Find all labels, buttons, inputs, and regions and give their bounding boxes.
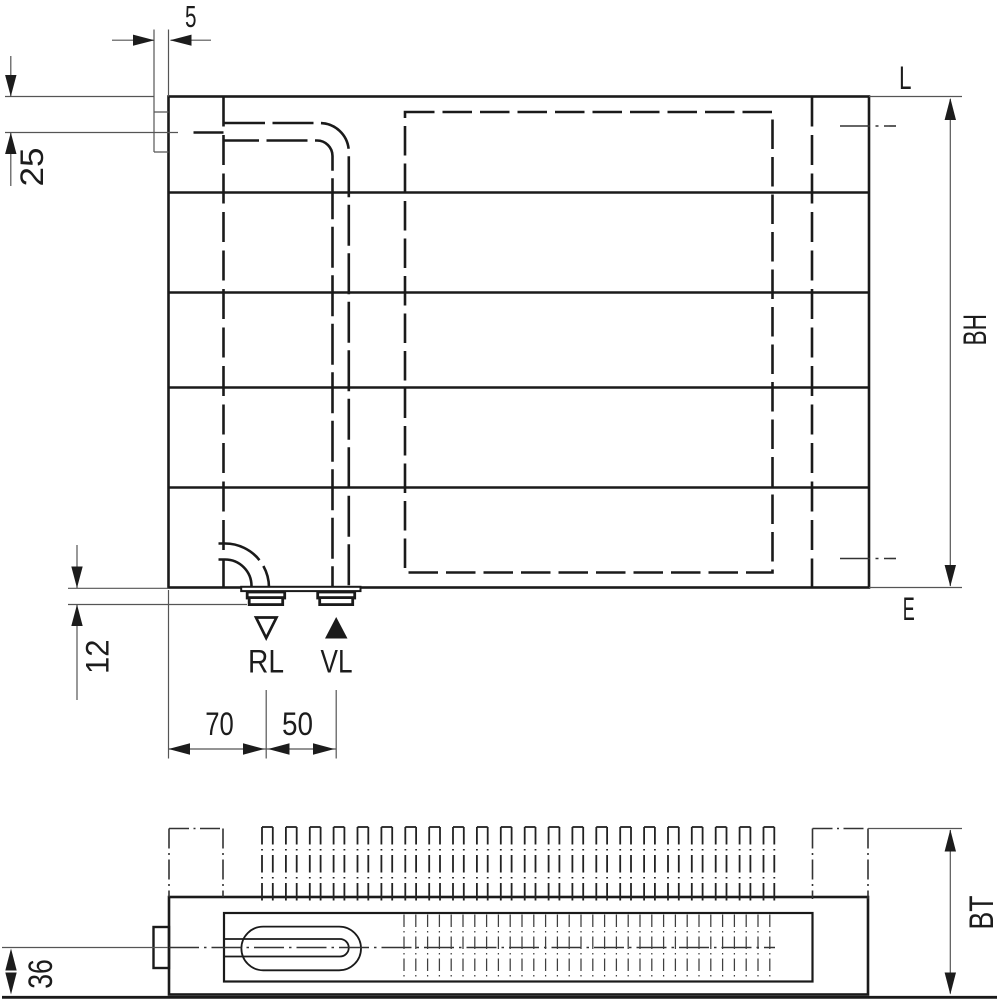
svg-text:5: 5: [185, 0, 197, 34]
svg-text:VL: VL: [321, 644, 353, 680]
svg-text:12: 12: [80, 640, 116, 675]
svg-text:50: 50: [282, 706, 313, 742]
svg-text:25: 25: [14, 148, 50, 187]
svg-text:36: 36: [22, 959, 60, 989]
svg-text:L: L: [899, 60, 912, 96]
svg-text:BH: BH: [957, 314, 993, 346]
svg-text:BT: BT: [963, 896, 1000, 930]
svg-text:E: E: [903, 591, 915, 627]
svg-text:70: 70: [205, 706, 234, 742]
svg-text:RL: RL: [248, 644, 284, 680]
